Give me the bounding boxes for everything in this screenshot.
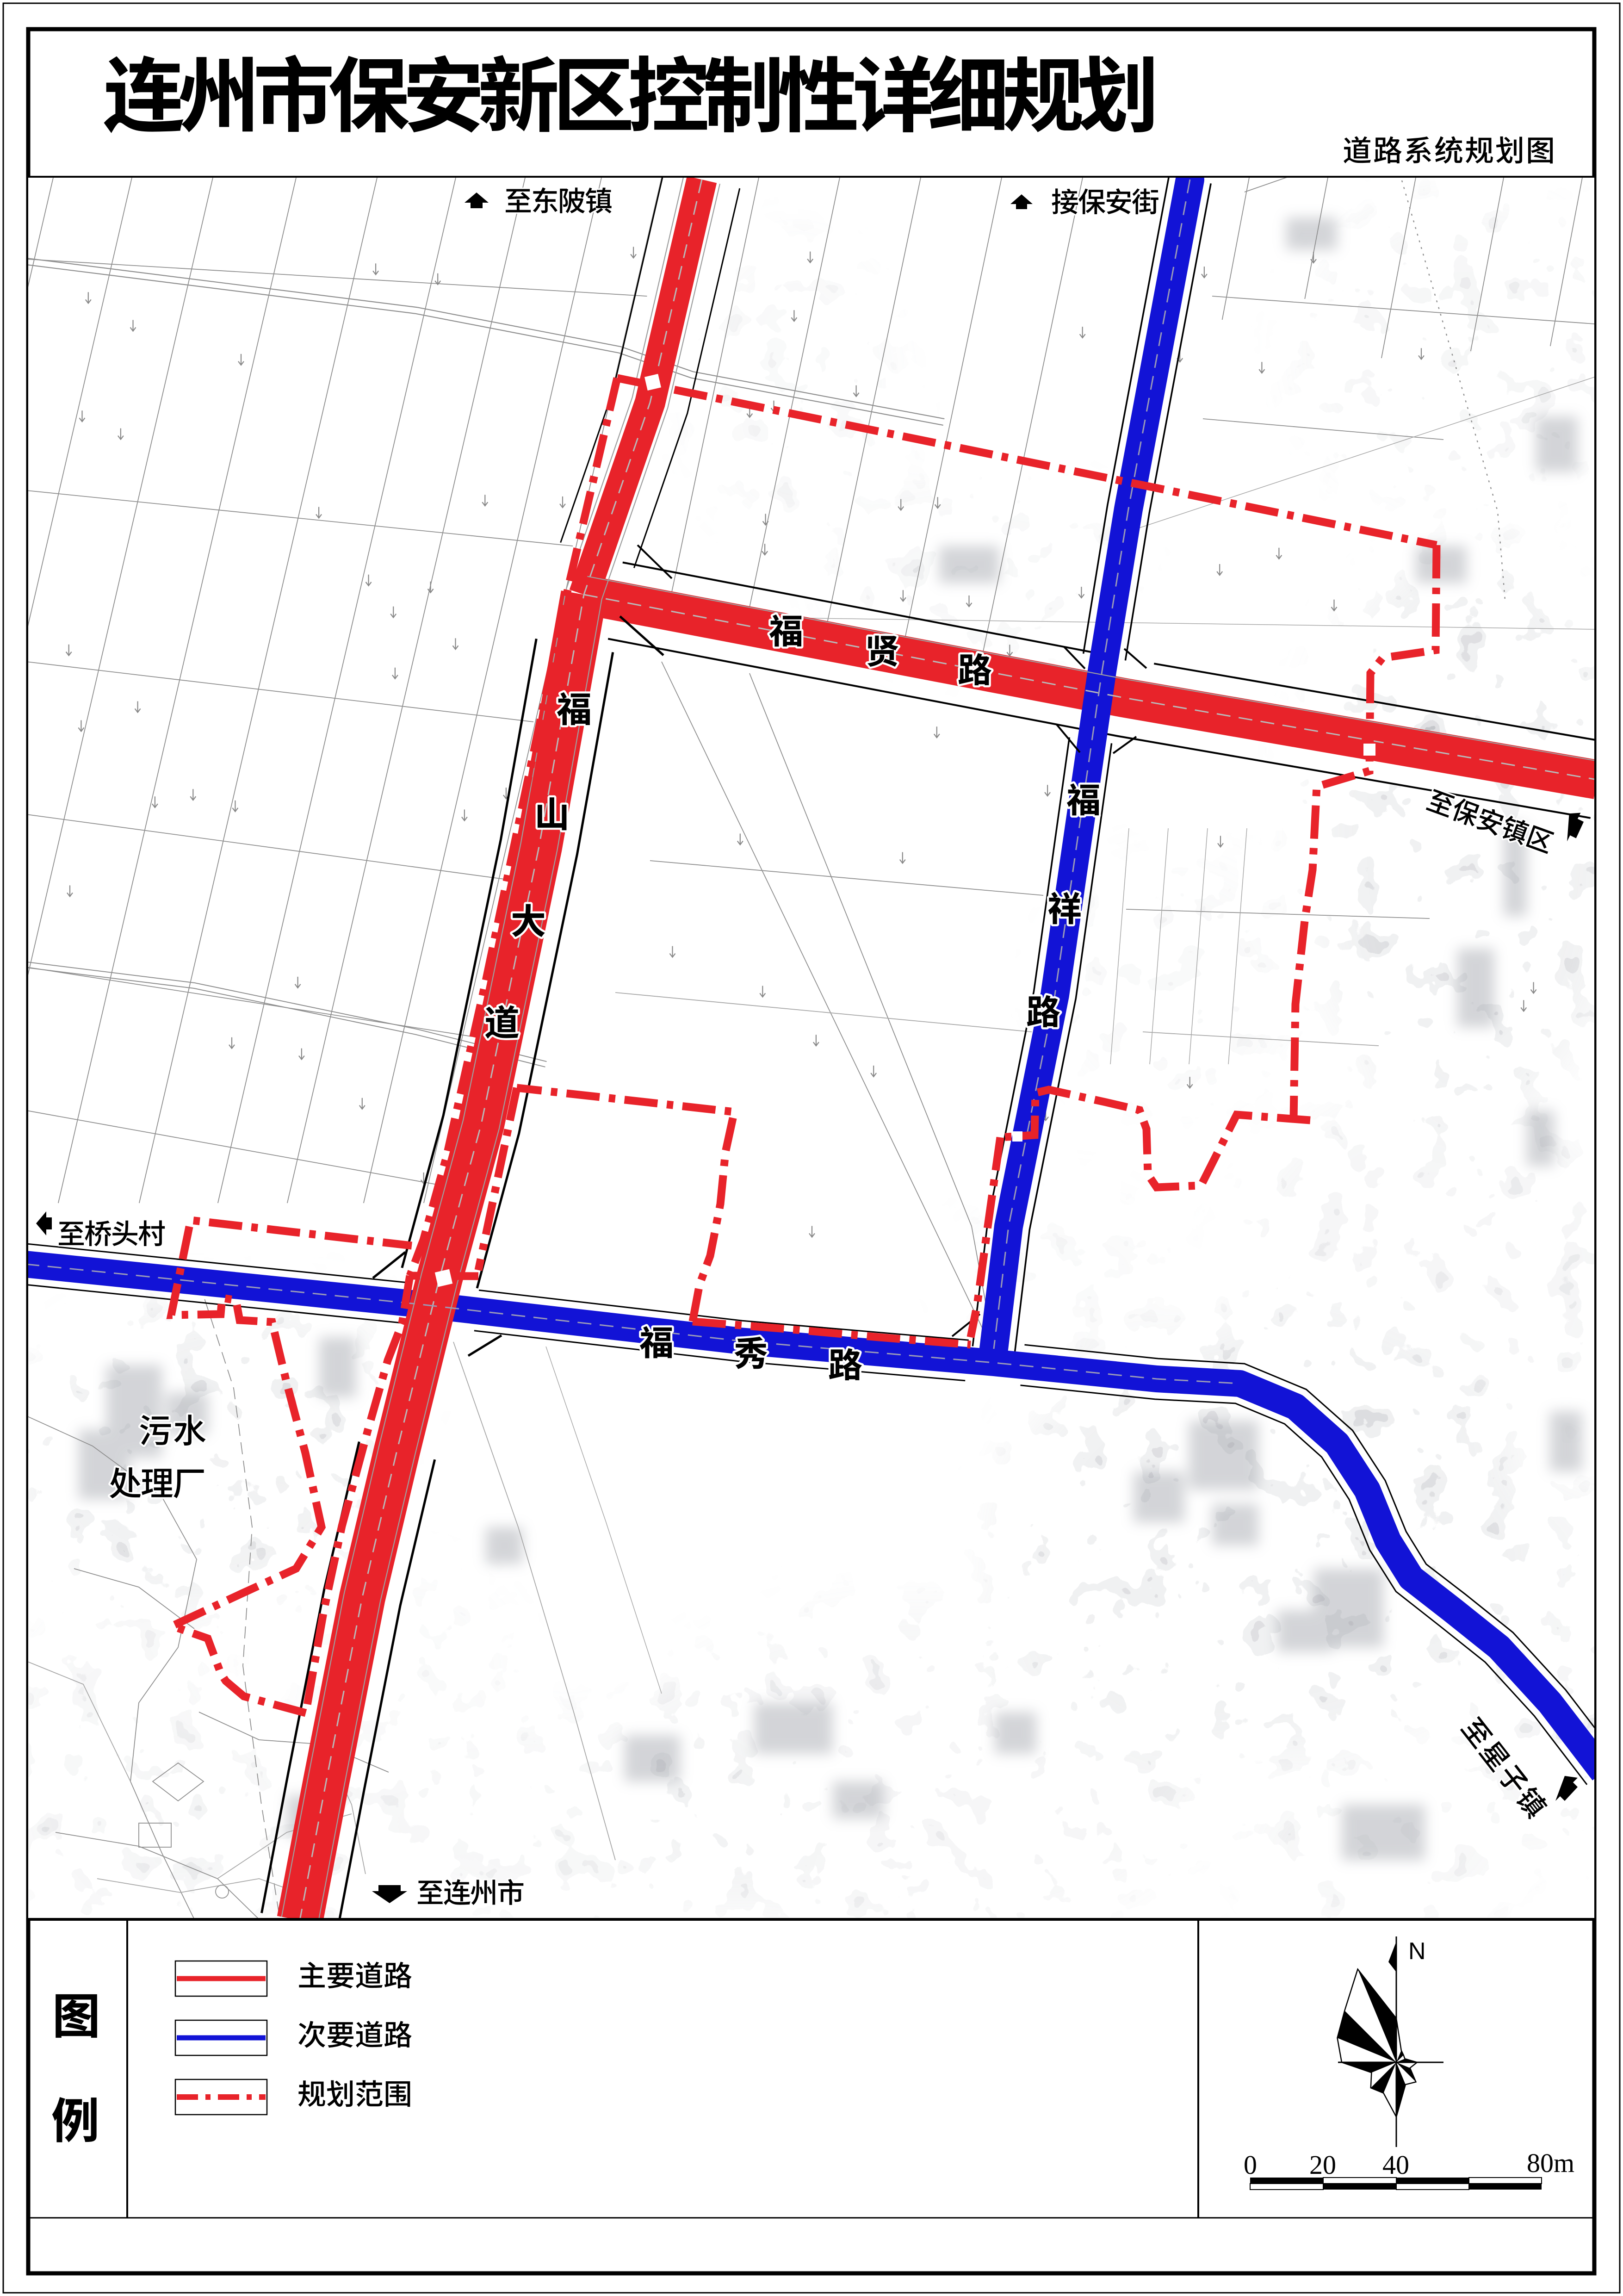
svg-text:20: 20 [1309, 2150, 1336, 2180]
svg-text:40: 40 [1382, 2150, 1409, 2180]
svg-text:N: N [1408, 1938, 1426, 1965]
svg-text:0: 0 [1244, 2150, 1257, 2180]
svg-text:80m: 80m [1527, 2148, 1574, 2178]
